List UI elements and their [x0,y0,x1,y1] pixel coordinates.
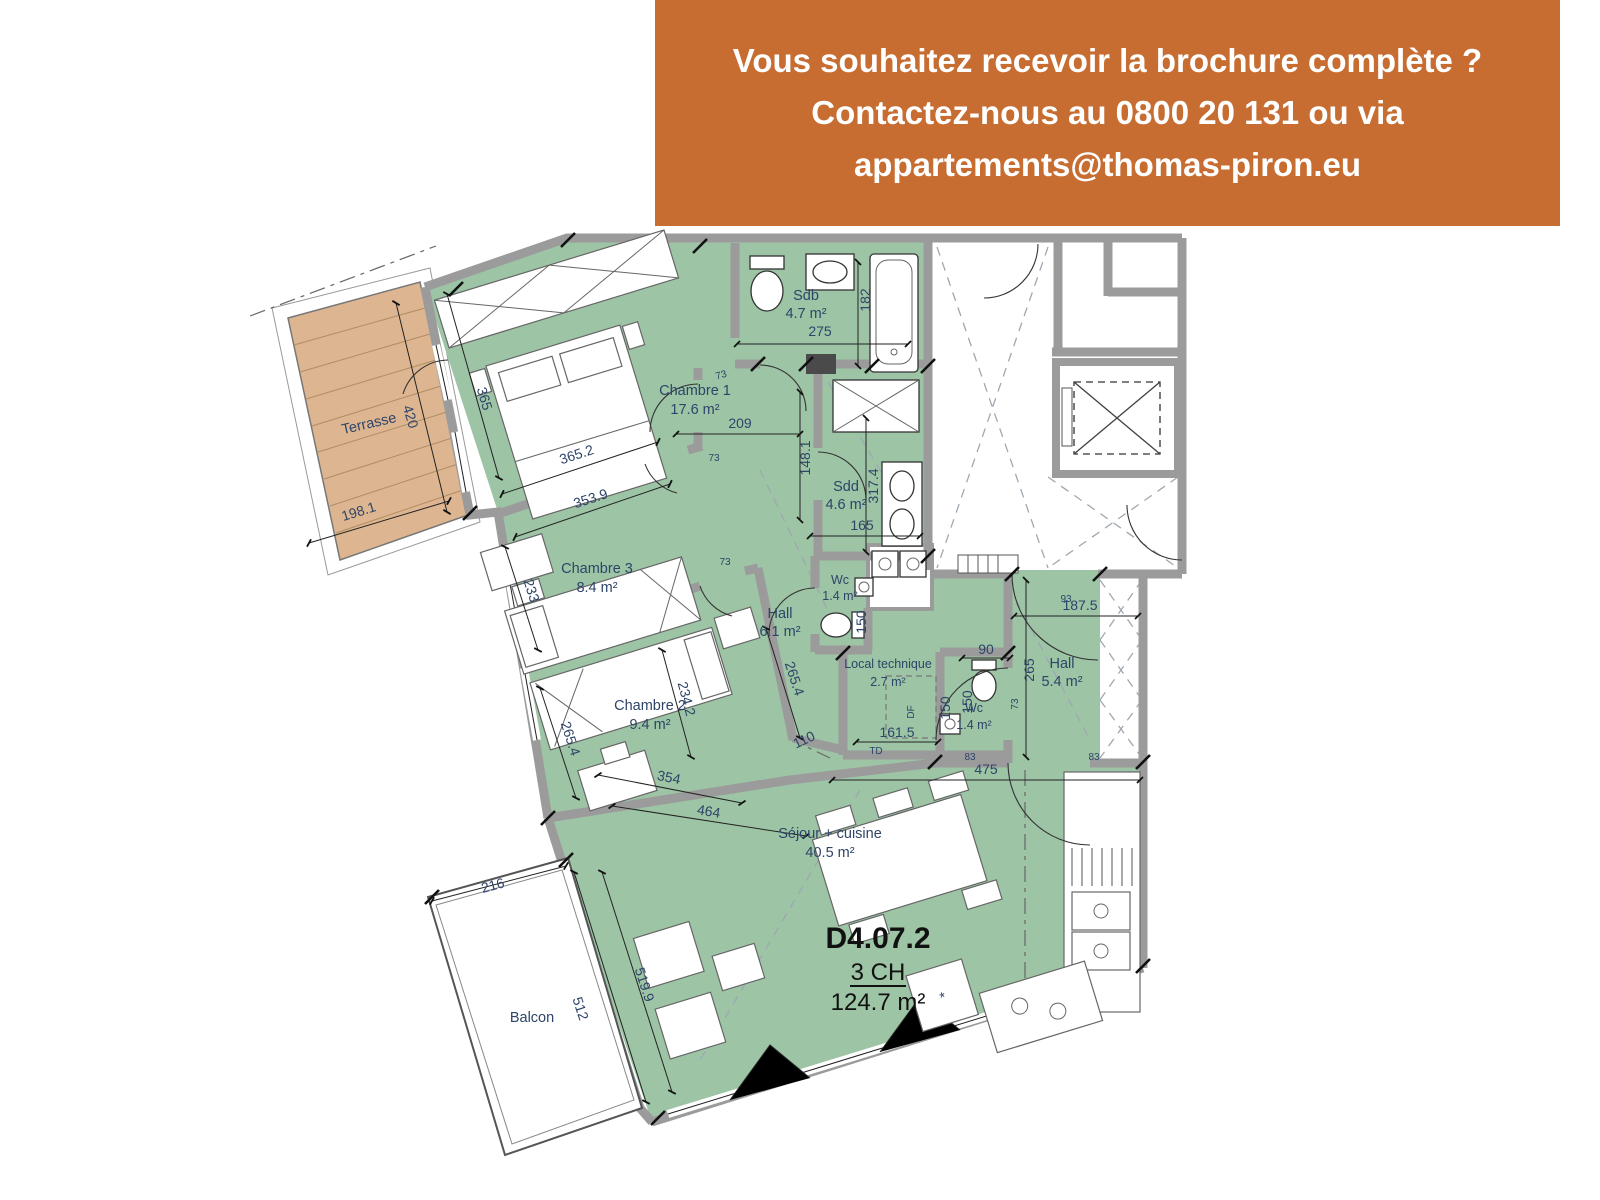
room-area-hall2: 5.4 m² [1041,674,1082,690]
elevator [1056,362,1178,474]
room-area-chambre1: 17.6 m² [670,402,719,418]
dim-label-small: 73 [1010,698,1021,710]
dim-label-small: 83 [1088,752,1100,763]
room-label-hall2: Hall [1050,656,1075,672]
kitchen-sink [1072,892,1130,930]
unit-area: 124.7 m² [831,989,926,1016]
room-area-chambre2: 9.4 m² [629,717,670,733]
dim-label: 148.1 [797,440,813,475]
info-banner: Vous souhaitez recevoir la brochure comp… [655,0,1560,226]
room-label-chambre3: Chambre 3 [561,561,633,577]
page: * [0,0,1600,1200]
room-label-sdd: Sdd [833,479,859,495]
wc1-toilet-icon [821,613,851,637]
df-label: DF [906,705,917,718]
dim-label: 475 [974,761,998,777]
dim-label: 150 [937,696,953,720]
td-label: TD [869,746,882,757]
dim-label: 209 [728,415,752,431]
room-label-chambre1: Chambre 1 [659,383,731,399]
stairwell [958,555,1018,573]
dim-label: 165 [850,517,874,533]
toilet-tank [750,256,784,269]
room-label-balcon: Balcon [510,1010,554,1026]
dim-label: 265 [1021,658,1037,682]
dim-label-small: 93 [1060,594,1072,605]
dim-label-small: 73 [708,453,720,464]
room-label-sdb: Sdb [793,288,819,304]
dim-label-small: 73 [719,557,731,568]
room-label-chambre2: Chambre 2 [614,698,686,714]
room-area-wc2: 1.4 m² [956,718,991,732]
banner-line-1: Vous souhaitez recevoir la brochure comp… [733,43,1482,79]
dim-label-small: 83 [964,752,976,763]
room-area-sejour: 40.5 m² [805,845,854,861]
room-area-wc1: 1.4 m² [822,589,857,603]
dim-label: 275 [808,323,832,339]
dim-label: 161.5 [879,724,914,740]
room-area-sdb: 4.7 m² [785,306,826,322]
room-label-sejour: Séjour + cuisine [778,826,882,842]
dim-label: 90 [978,641,994,657]
dim-label: 317.4 [865,468,881,503]
dim-label: 182 [857,288,873,312]
room-label-wc1: Wc [831,573,849,587]
unit-code: D4.07.2 [825,922,930,955]
room-area-sdd: 4.6 m² [825,497,866,513]
dim-label: 150 [853,610,869,634]
toilet-icon [751,271,783,311]
room-area-hall1: 6.1 m² [759,624,800,640]
room-area-chambre3: 8.4 m² [576,580,617,596]
room-label-hall1: Hall [768,606,793,622]
bathtub-icon [870,254,918,372]
banner-line-2: Contactez-nous au 0800 20 131 ou via [811,95,1403,131]
room-label-local-technique: Local technique [844,657,932,671]
unit-bedrooms: 3 CH [851,959,906,986]
dim-label: 150 [959,690,975,714]
room-area-local-technique: 2.7 m² [870,675,905,689]
banner-line-3: appartements@thomas-piron.eu [854,147,1361,183]
